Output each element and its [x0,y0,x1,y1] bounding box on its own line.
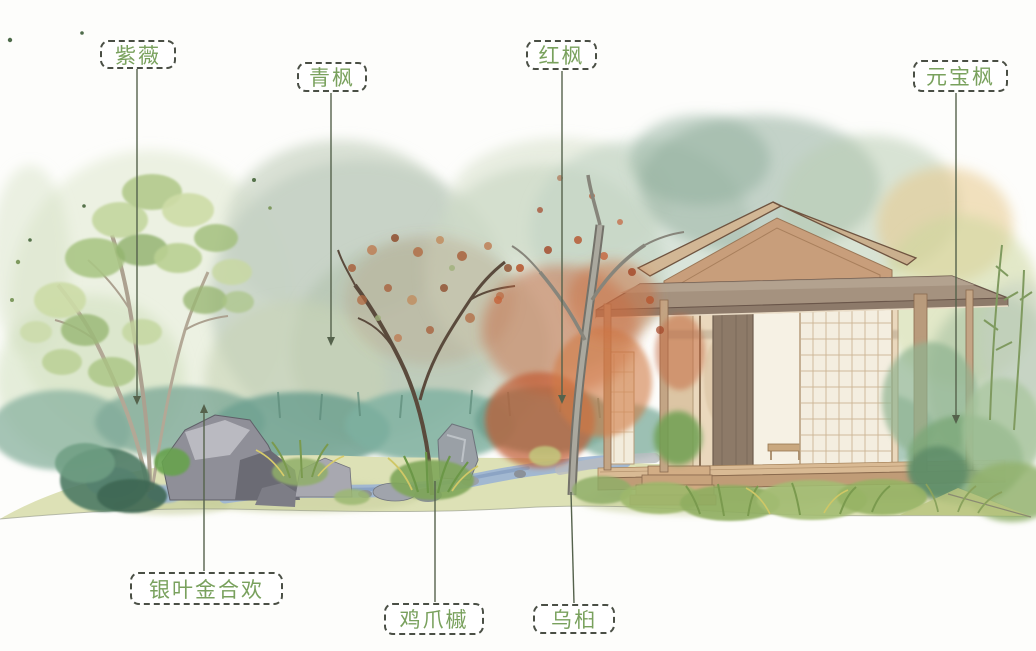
plant-label-text: 乌桕 [551,604,597,634]
shoji-screen [800,305,892,465]
leader-line-wujiu [571,492,574,603]
plant-label-wujiu: 乌桕 [533,604,615,634]
plant-label-yinyejinhehuan: 银叶金合欢 [130,572,283,605]
plant-label-text: 青枫 [309,62,355,92]
plant-label-text: 银叶金合欢 [149,574,264,604]
plant-label-hongfeng: 红枫 [526,40,597,70]
plant-label-ziwei: 紫薇 [100,40,176,69]
garden-planting-diagram: 紫薇 青枫 红枫 元宝枫 银叶金合欢 鸡爪槭 乌桕 [0,0,1036,651]
plant-label-yuanbaofeng: 元宝枫 [913,60,1008,92]
plant-label-jizhuaqi: 鸡爪槭 [384,603,484,635]
plant-label-text: 鸡爪槭 [400,604,469,634]
plant-label-text: 红枫 [539,40,585,70]
plant-label-text: 元宝枫 [926,61,995,91]
plant-label-qingfeng: 青枫 [297,62,367,92]
tea-house-doorway [713,308,814,470]
plant-label-text: 紫薇 [115,40,161,70]
watercolor-garden-scene [0,0,1036,651]
